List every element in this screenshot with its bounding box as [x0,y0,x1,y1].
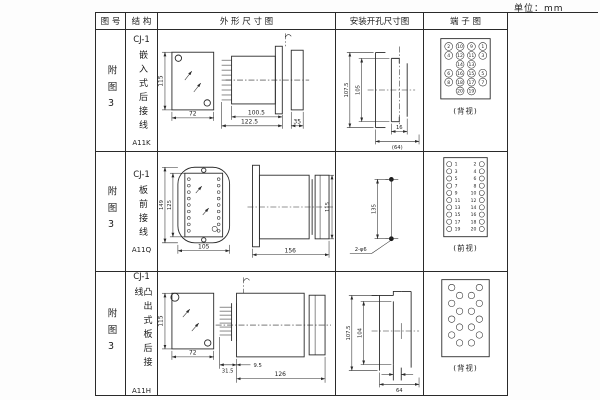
figure-no-label: 附图3 [104,186,118,237]
structure-label: 嵌入式后接线 [137,50,146,134]
terminal-figure-back: (背视) [424,273,507,395]
terminal-number: 19 [455,226,461,232]
figure-no-cell-a11h: 附图3 [96,272,126,396]
figure-no-cell-a11k: 附图3 [96,30,126,152]
terminal-number: 15 [455,212,461,218]
terminal-number: 18 [471,219,477,225]
dim-label-inner: 104 [358,327,364,338]
dim-label-side-height: 115 [325,201,331,211]
terminal-number: 13 [455,205,461,211]
terminal-number: 19 [469,88,475,94]
terminal-number: 14 [471,205,477,211]
figure-no-label: 附图3 [104,65,118,116]
terminal-number: 7 [455,183,458,189]
dim-label-width: 64 [396,387,403,393]
terminal-number: 17 [455,219,461,225]
terminal-number: 20 [471,226,477,232]
structure-label: 凸出式板后接线 [133,287,151,382]
outline-drawing-a11k: 115 72 100.5 122.5 35 [158,30,336,152]
figure-no-label: 附图3 [104,308,118,359]
terminal-number: 13 [469,62,475,68]
header-structure: 结 构 [126,13,158,30]
dim-label-side-3: 35 [293,118,301,125]
terminal-number: 5 [481,70,484,76]
mounting-hole-figure: 107.5 105 16 (64) [336,30,423,152]
mounting-drawing-a11k: 107.5 105 16 (64) [336,30,424,152]
figure-no-cell-a11q: 附图3 [96,152,126,272]
structure-label: 板前接线 [137,185,146,241]
header-outline-dims: 外 形 尺 寸 图 [158,13,336,30]
terminal-number: 4 [447,53,450,59]
mounting-drawing-a11q: 135 2-φ6 [336,152,424,272]
terminal-number: 1 [481,44,484,50]
outline-drawing-a11h: 115 72 31.5 9.5 126 [158,272,336,396]
terminal-drawing-a11h: (背视) [424,272,508,396]
mounting-hole-figure: 107.5 104 64 [336,273,423,395]
terminal-drawing-a11q: 1 3 5 7 9 11 13 15 17 19 2 4 6 8 10 12 1… [424,152,508,272]
structure-cell-a11h: CJ-1 凸出式板后接线 A11H [126,272,158,396]
terminal-number: 7 [481,79,484,85]
type-code-label: A11Q [132,246,151,254]
outline-drawing-a11q: 149 125 105 115 156 [158,152,336,272]
dim-label-front-width: 72 [189,349,197,356]
view-label-front: (前视) [453,242,478,252]
terminal-figure-back: 2 10 9 1 4 12 11 3 14 13 6 16 15 5 8 18 … [424,30,507,152]
terminal-number: 8 [473,183,476,189]
type-code-label: A11K [132,139,150,147]
dim-label-slot: 16 [396,125,403,131]
terminal-figure-front: 1 3 5 7 9 11 13 15 17 19 2 4 6 8 10 12 1… [424,152,507,272]
dim-label-side-1: 100.5 [248,109,265,116]
header-mounting-holes: 安装开孔尺寸图 [336,13,424,30]
model-label: CJ-1 [133,35,150,45]
terminal-number: 4 [473,168,476,174]
terminal-number: 2 [473,161,476,167]
terminal-number: 15 [469,70,475,76]
dim-label-outer-height: 149 [159,200,165,210]
dim-label-outer: 107.5 [344,82,350,97]
structure-cell-a11q: CJ-1 板前接线 A11Q [126,152,158,272]
terminal-number: 10 [471,190,477,196]
header-terminal-diagram: 端 子 图 [424,13,508,30]
terminal-number: 10 [457,44,463,50]
outline-dimension-figure: 115 72 100.5 122.5 35 [158,30,335,152]
dim-label-side-2: 122.5 [241,118,258,125]
model-label: CJ-1 [133,272,150,282]
hole-callout-label: 2-φ6 [355,247,367,253]
model-label: CJ-1 [133,170,150,180]
terminal-number: 18 [457,79,463,85]
dim-label-side-3: 126 [275,371,287,378]
mounting-drawing-a11h: 107.5 104 64 [336,272,424,396]
type-code-label: A11H [132,387,151,395]
terminal-number: 2 [447,44,450,50]
mounting-hole-figure: 135 2-φ6 [336,152,423,272]
top-rule [508,12,598,13]
terminal-number: 6 [447,70,450,76]
terminal-number: 9 [470,44,473,50]
dim-label-front-width: 72 [189,110,197,117]
outline-dimension-figure: 149 125 105 115 156 [158,152,335,272]
terminal-number: 16 [471,212,477,218]
dim-label-side-2: 9.5 [253,362,261,368]
terminal-number: 11 [469,53,475,59]
terminal-number: 14 [457,62,463,68]
dim-label-front-height: 115 [158,75,164,87]
terminal-number: 8 [447,79,450,85]
view-label-back: (背视) [453,362,478,372]
dim-label-inner: 105 [356,85,362,95]
dim-label-inner-height: 125 [167,200,173,210]
view-label-back: (背视) [453,105,478,115]
terminal-number: 12 [457,53,463,59]
dim-label-width: (64) [392,144,403,150]
terminal-number: 20 [457,88,463,94]
dim-label-front-height: 115 [158,315,164,327]
terminal-number: 6 [473,176,476,182]
terminal-number: 5 [455,176,458,182]
header-figure-no: 图 号 [96,13,126,30]
terminal-number: 12 [471,197,477,203]
dim-label-side-length: 156 [285,247,297,254]
dim-label-side-1: 31.5 [222,368,234,374]
dim-label-outer: 107.5 [346,325,352,340]
structure-cell-a11k: CJ-1 嵌入式后接线 A11K [126,30,158,152]
terminal-number: 11 [455,197,461,203]
dim-label-hole-spacing: 135 [372,204,378,214]
dim-label-front-width: 105 [198,243,210,250]
terminal-number: 16 [457,70,463,76]
terminal-number: 17 [469,79,475,85]
spec-table: 图 号 结 构 外 形 尺 寸 图 安装开孔尺寸图 端 子 图 附图3 CJ-1… [95,12,508,396]
terminal-number: 3 [481,53,484,59]
terminal-number: 3 [455,168,458,174]
terminal-number: 9 [455,190,458,196]
terminal-number: 1 [455,161,458,167]
terminal-drawing-a11k: 2 10 9 1 4 12 11 3 14 13 6 16 15 5 8 18 … [424,30,508,152]
outline-dimension-figure: 115 72 31.5 9.5 126 [158,273,335,395]
